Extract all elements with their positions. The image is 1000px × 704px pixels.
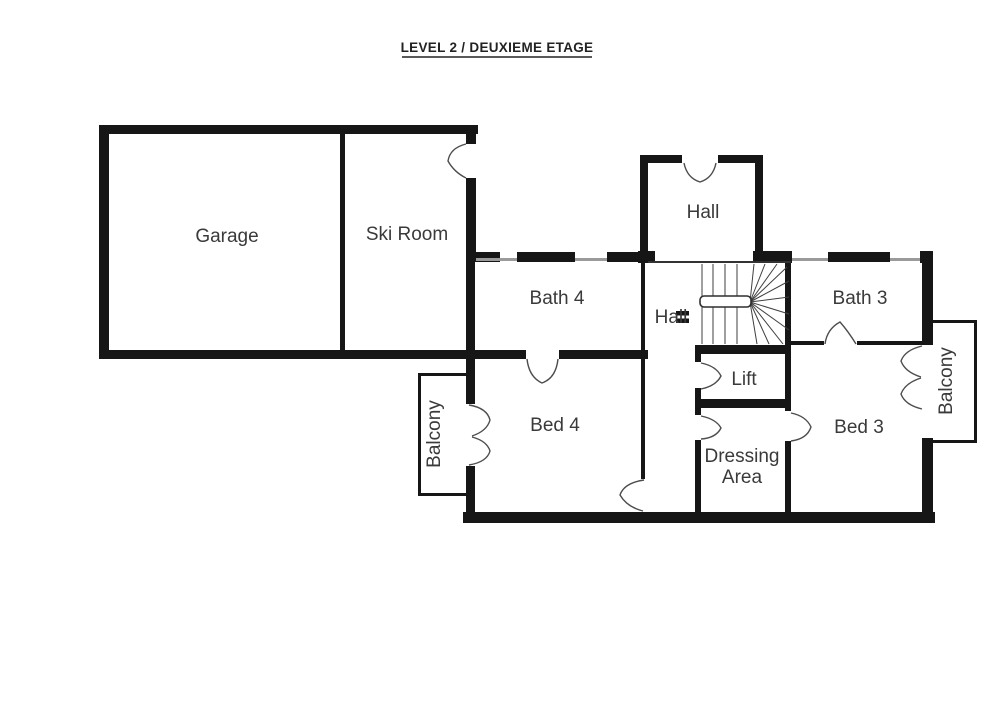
wall-east-upper: [922, 258, 933, 345]
stair-winder: [750, 297, 789, 302]
wall-hall-lower-left: [641, 262, 645, 479]
wall-dressing-left-lower: [695, 440, 701, 512]
wall-west-lower: [466, 466, 475, 512]
label-bath4: Bath 4: [530, 288, 585, 309]
door-balcony-left-leaf1-icon: [469, 405, 490, 436]
door-bed3-icon: [791, 413, 811, 441]
stair-winder: [750, 264, 777, 302]
label-dressing-line2: Area: [722, 467, 763, 488]
wall-hall-upper-right: [755, 155, 763, 252]
staircase-icon: [676, 264, 789, 344]
wall-balcony-right-top: [928, 320, 977, 323]
wall-lift-bottom: [695, 399, 791, 408]
wall-balcony-left-bottom: [418, 493, 466, 496]
wall-skiroom-right-upper: [466, 125, 476, 144]
door-bath4-bed4-icon: [527, 359, 558, 383]
wall-garage-bottom-left: [99, 350, 526, 359]
stair-handrail: [700, 296, 751, 307]
wall-stairs-right: [785, 263, 791, 411]
stair-winder: [750, 302, 789, 314]
label-bed4: Bed 4: [530, 415, 580, 436]
wall-east-lower: [922, 438, 933, 512]
label-dressing-line1: Dressing: [705, 446, 780, 467]
wall-skiroom-right-lower: [466, 178, 476, 262]
wall-garage-left: [99, 125, 109, 359]
wall-garage-skiroom-divider: [340, 134, 345, 350]
wall-bath3-bottom-left: [791, 341, 824, 345]
label-bed3: Bed 3: [834, 417, 884, 438]
wall-balcony-right-side: [974, 320, 977, 443]
door-lift-icon: [701, 363, 721, 389]
room-labels: Garage Ski Room Hall Bath 4 Hall Bath 3 …: [195, 202, 957, 488]
wall-west-upper: [466, 262, 475, 404]
wall-stairs-bottom: [695, 345, 791, 354]
wall-dressing-bed3-divider: [785, 441, 791, 512]
label-bath3: Bath 3: [833, 288, 888, 309]
label-balcony-right: Balcony: [936, 347, 957, 415]
page-title: LEVEL 2 / DEUXIEME ETAGE: [401, 40, 594, 55]
wall-lift-left-upper: [695, 345, 701, 362]
wall-garage-top: [99, 125, 478, 134]
floor-plan-drawing: LEVEL 2 / DEUXIEME ETAGE: [0, 0, 1000, 704]
label-ski-room: Ski Room: [366, 224, 448, 245]
wall-balcony-left-top: [418, 373, 466, 376]
label-lift: Lift: [731, 369, 757, 390]
door-balcony-right-leaf2-icon: [901, 378, 922, 409]
label-garage: Garage: [195, 226, 258, 247]
stair-winder: [750, 302, 757, 344]
wall-balcony-right-bottom: [928, 440, 977, 443]
door-bath3-icon: [825, 322, 856, 344]
window-bar-bath3: [828, 252, 890, 262]
door-dressing-icon: [701, 416, 721, 439]
walls: [99, 125, 977, 523]
label-hall-upper: Hall: [687, 202, 720, 223]
wall-bath4-bed4-divider: [559, 350, 648, 359]
door-balcony-left-leaf2-icon: [469, 437, 490, 465]
wall-south: [463, 512, 935, 523]
door-bed4-hall-icon: [620, 480, 644, 511]
window-bar-bath4-1: [517, 252, 575, 262]
door-hall-upper-icon: [684, 163, 716, 182]
label-hall-lower: Hall: [655, 307, 688, 328]
window-bar-bath4-2: [607, 252, 638, 262]
wall-hall-upper-top-left: [640, 155, 682, 163]
wall-hall-upper-left: [640, 155, 648, 260]
label-balcony-left: Balcony: [424, 400, 445, 468]
door-balcony-right-leaf1-icon: [901, 346, 922, 377]
wall-balcony-left-side: [418, 373, 421, 496]
wall-bath3-bottom-right: [857, 341, 922, 345]
floor-plan-page: LEVEL 2 / DEUXIEME ETAGE: [0, 0, 1000, 704]
wall-dressing-left-upper: [695, 408, 701, 415]
wall-lift-left-lower: [695, 388, 701, 399]
door-ski-room-icon: [448, 144, 466, 178]
